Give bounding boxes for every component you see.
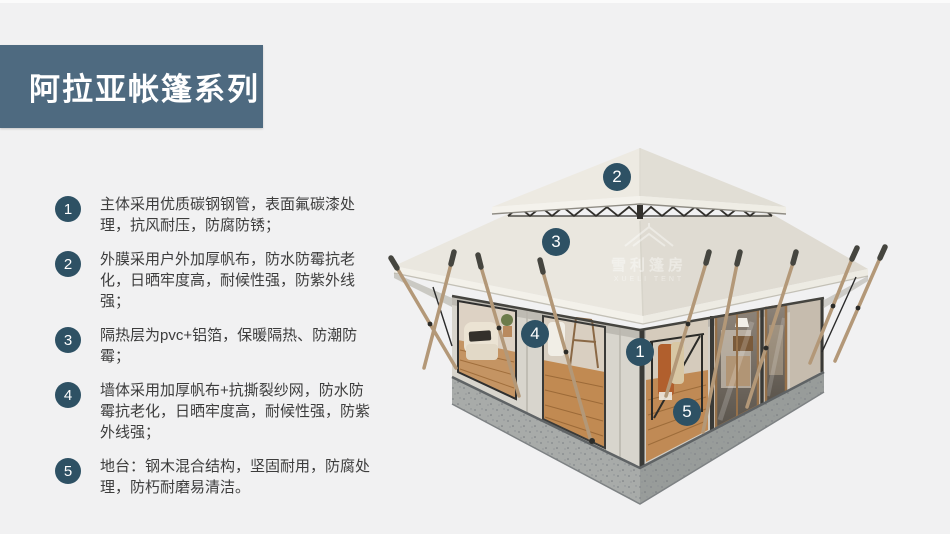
callout-badge-2: 2 [603, 163, 631, 191]
plant [501, 314, 513, 326]
tent-illustration [0, 0, 950, 534]
callout-badge-3: 3 [542, 228, 570, 256]
product-slide: { "page": { "background_color": "#f1f1f2… [0, 0, 950, 534]
callout-badge-4: 4 [521, 320, 549, 348]
tent-upper-roof [492, 148, 786, 214]
callout-badge-1: 1 [626, 338, 654, 366]
callout-badge-5: 5 [673, 398, 701, 426]
